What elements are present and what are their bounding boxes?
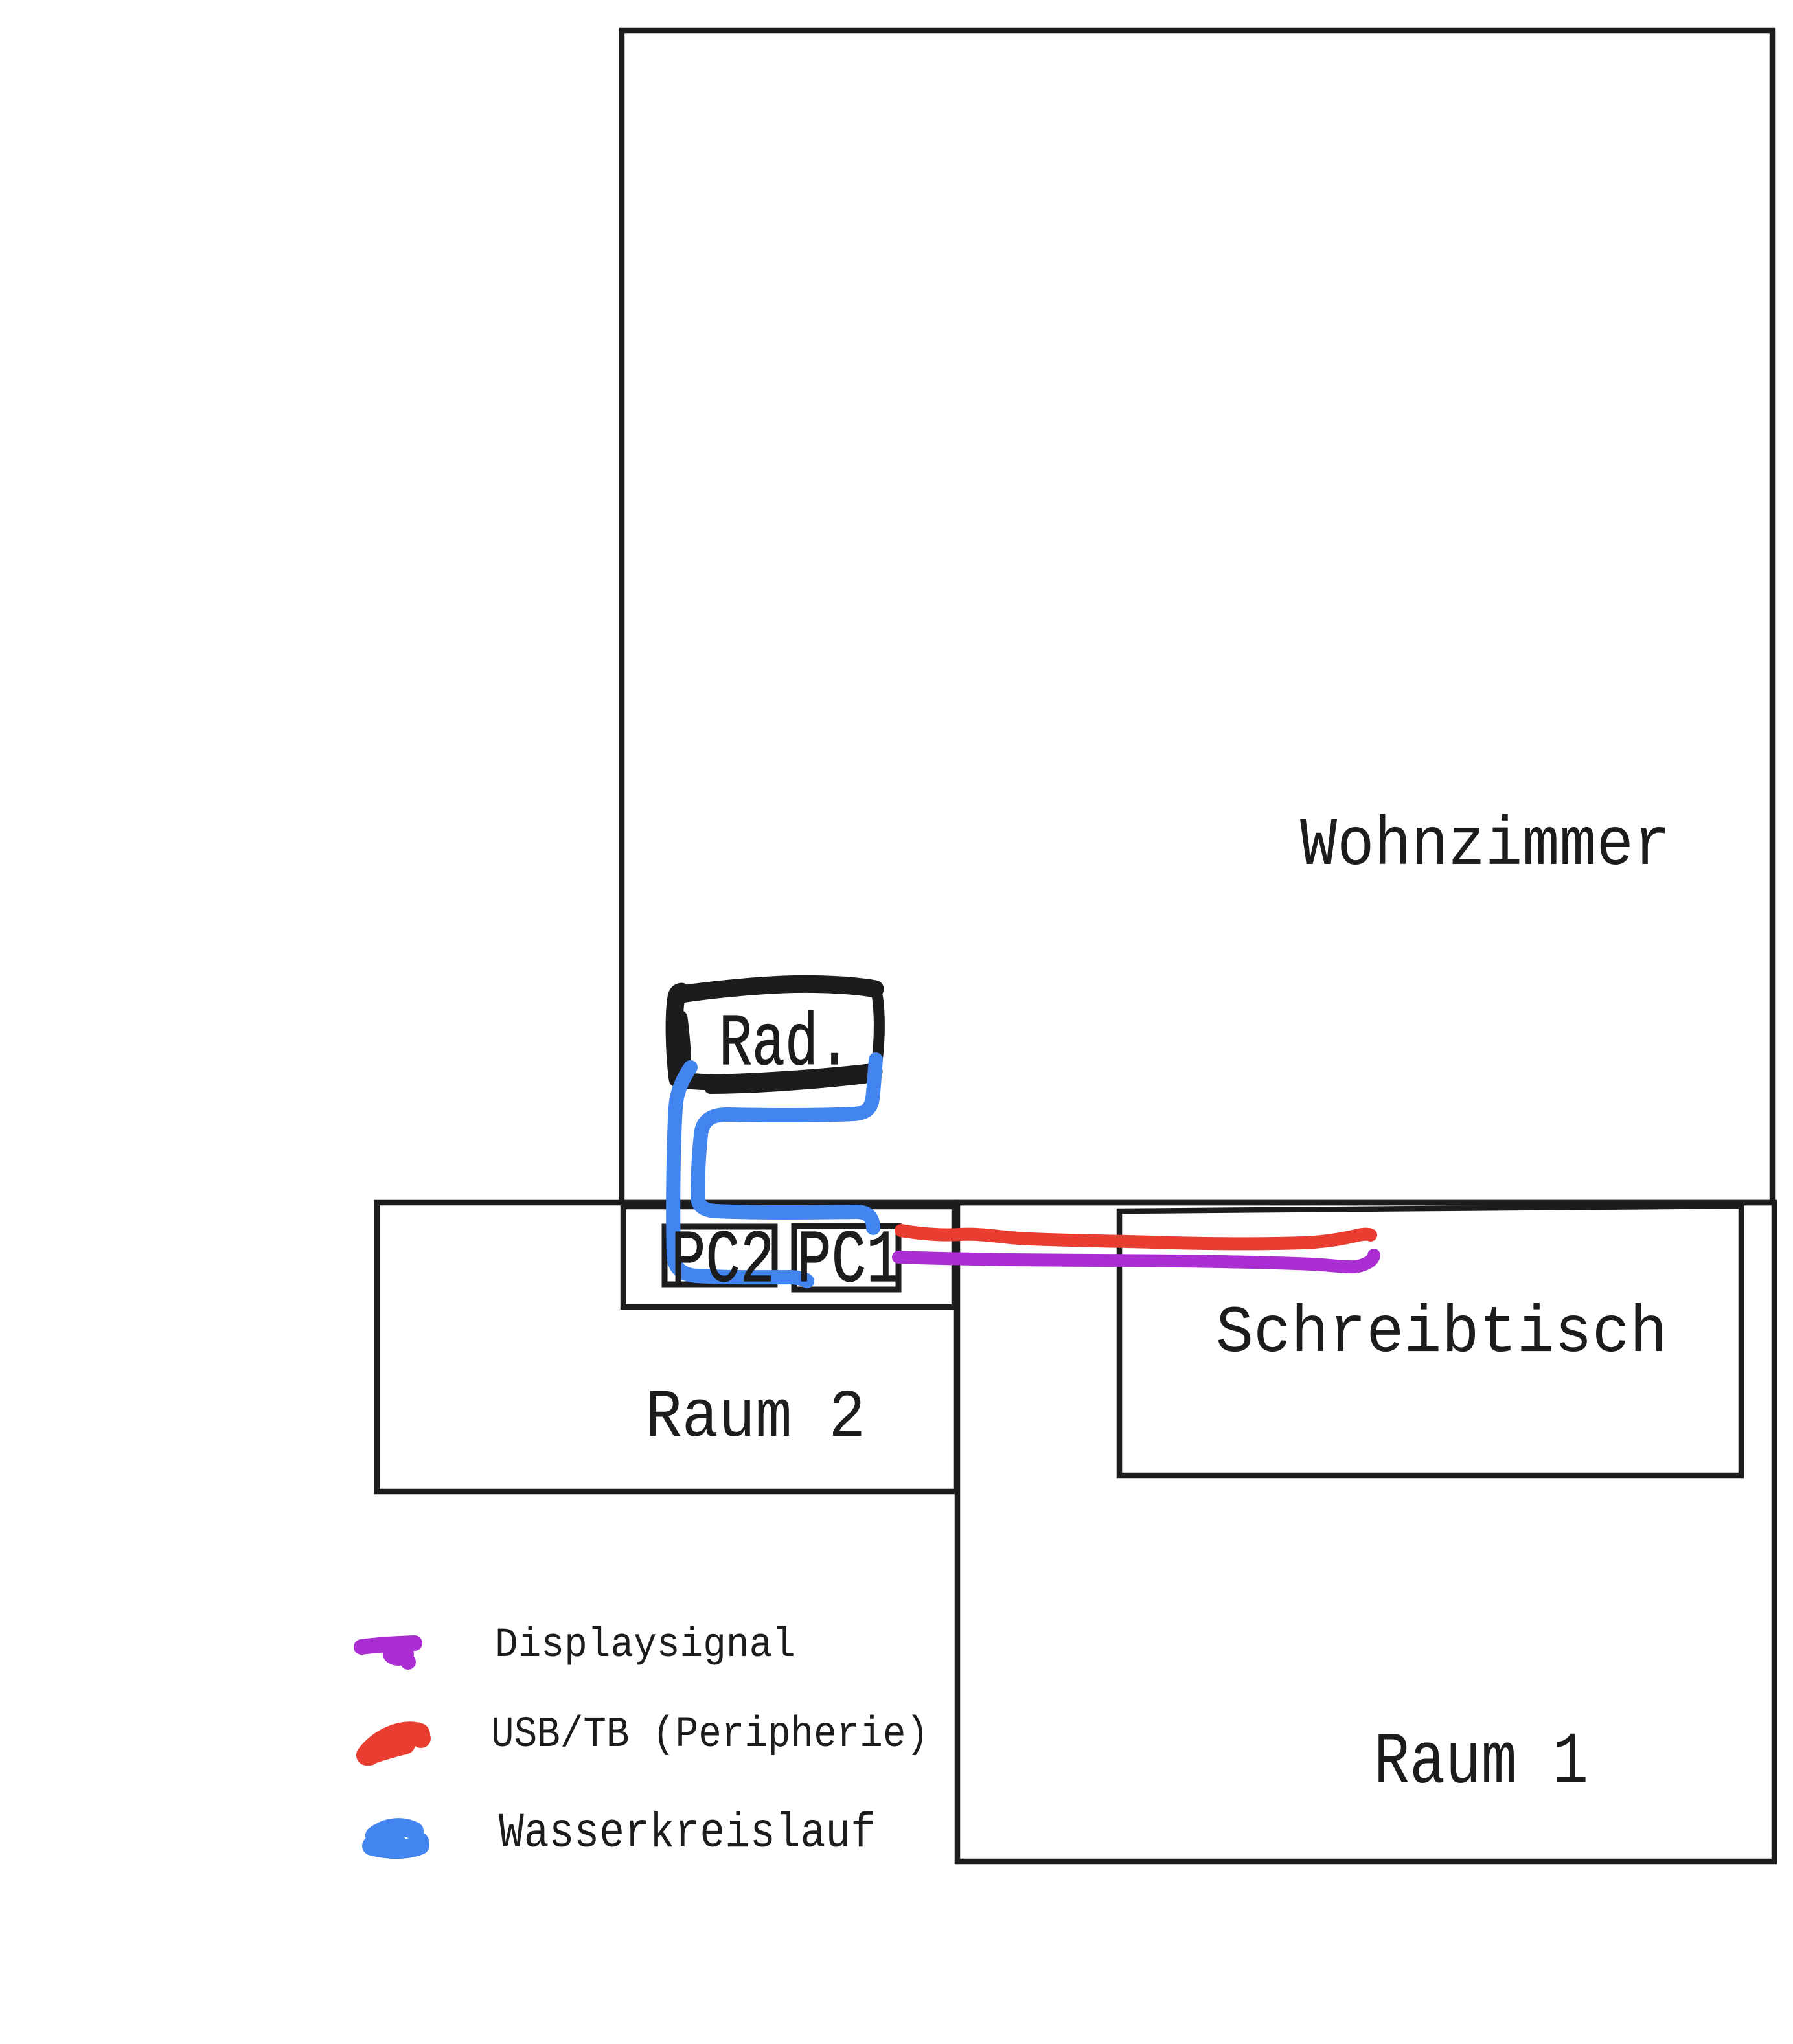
svg-text:Rad.: Rad.: [719, 1003, 851, 1087]
svg-text:PC2: PC2: [671, 1219, 775, 1304]
svg-text:USB/TB (Peripherie): USB/TB (Peripherie): [491, 1710, 929, 1760]
svg-text:Schreibtisch: Schreibtisch: [1216, 1296, 1667, 1371]
svg-text:Wasserkreislauf: Wasserkreislauf: [499, 1806, 876, 1861]
svg-text:Wohnzimmer: Wohnzimmer: [1300, 807, 1671, 885]
svg-text:Displaysignal: Displaysignal: [495, 1622, 795, 1669]
svg-text:PC1: PC1: [797, 1219, 901, 1304]
svg-text:Raum 2: Raum 2: [645, 1380, 865, 1457]
svg-text:Raum 1: Raum 1: [1374, 1721, 1588, 1805]
